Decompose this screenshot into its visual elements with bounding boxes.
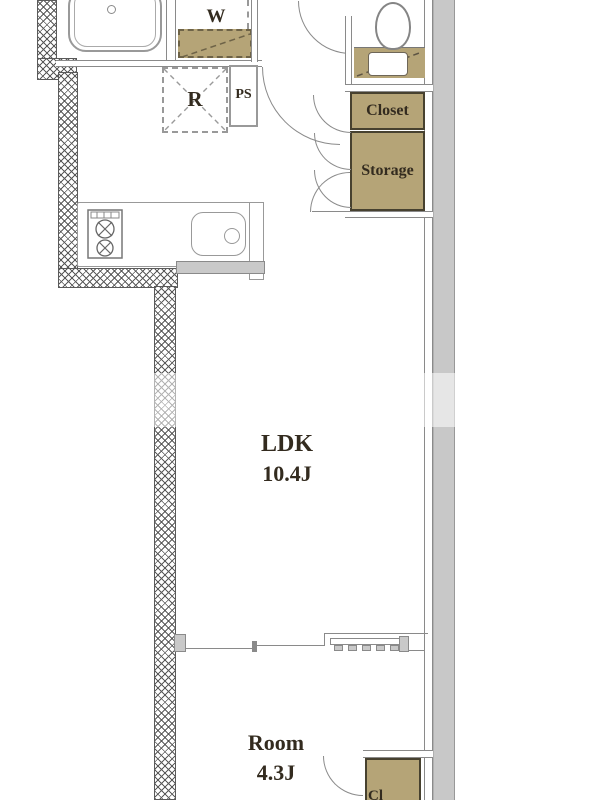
partition-top-line [324,633,428,634]
sliding-door-tooth-4 [376,645,385,651]
hall-ldk-wall [345,211,433,218]
faucet-icon [224,228,240,244]
partition-post [252,641,257,652]
exterior-wall-ldk-left [154,286,176,800]
sliding-door-tooth-1 [334,645,343,651]
storage-box: Storage [350,131,425,211]
closet-box: Closet [350,92,425,130]
ldk-room-label: LDK [227,432,347,456]
fridge-label: R [162,89,228,110]
sliding-door-tooth-5 [390,645,399,651]
washer-label: W [180,7,252,26]
bathtub-drain-icon [107,5,116,14]
partition-wall-stub [174,634,186,652]
entrance-door-arc [298,1,351,54]
bathroom-washer-divider-wall [166,0,176,62]
partition-step-line [324,633,325,646]
sliding-door-track [330,638,403,645]
sliding-door-tooth-3 [362,645,371,651]
storage-door-arc-upper [314,133,351,170]
room-name-label: Room [216,732,336,754]
watermark-band [0,373,600,427]
sliding-door-tooth-2 [348,645,357,651]
exterior-wall-horizontal [58,268,178,288]
toilet-icon [375,2,411,50]
bottom-closet-top-wall [363,750,433,758]
toilet-tank [368,52,408,76]
right-interior-wall-line [424,0,433,800]
partition-opening-line-left [186,648,253,649]
room-size-label: 4.3J [216,762,336,784]
kitchen-under-wall [176,261,265,274]
bottom-closet-label: Cl [368,789,422,800]
ldk-size-label: 10.4J [227,463,347,485]
bottom-closet-door-arc [323,756,363,796]
right-outer-wall-strip [433,0,455,800]
exterior-wall-kitchen-left [58,72,78,288]
toilet-bottom-wall [345,84,433,92]
partition-line-right-end [409,650,425,651]
partition-opening-line-right [257,645,324,646]
hall-toilet-wall-stub [345,16,352,84]
washer-pan [178,29,252,58]
washer-door-dashed-line [247,0,249,29]
washer-right-wall [251,0,258,62]
pipe-space-label: PS [229,88,258,102]
stove-icon [87,209,123,259]
sliding-door-end-cap [399,636,409,652]
floor-plan: W R PS Closet Storage [0,0,600,800]
